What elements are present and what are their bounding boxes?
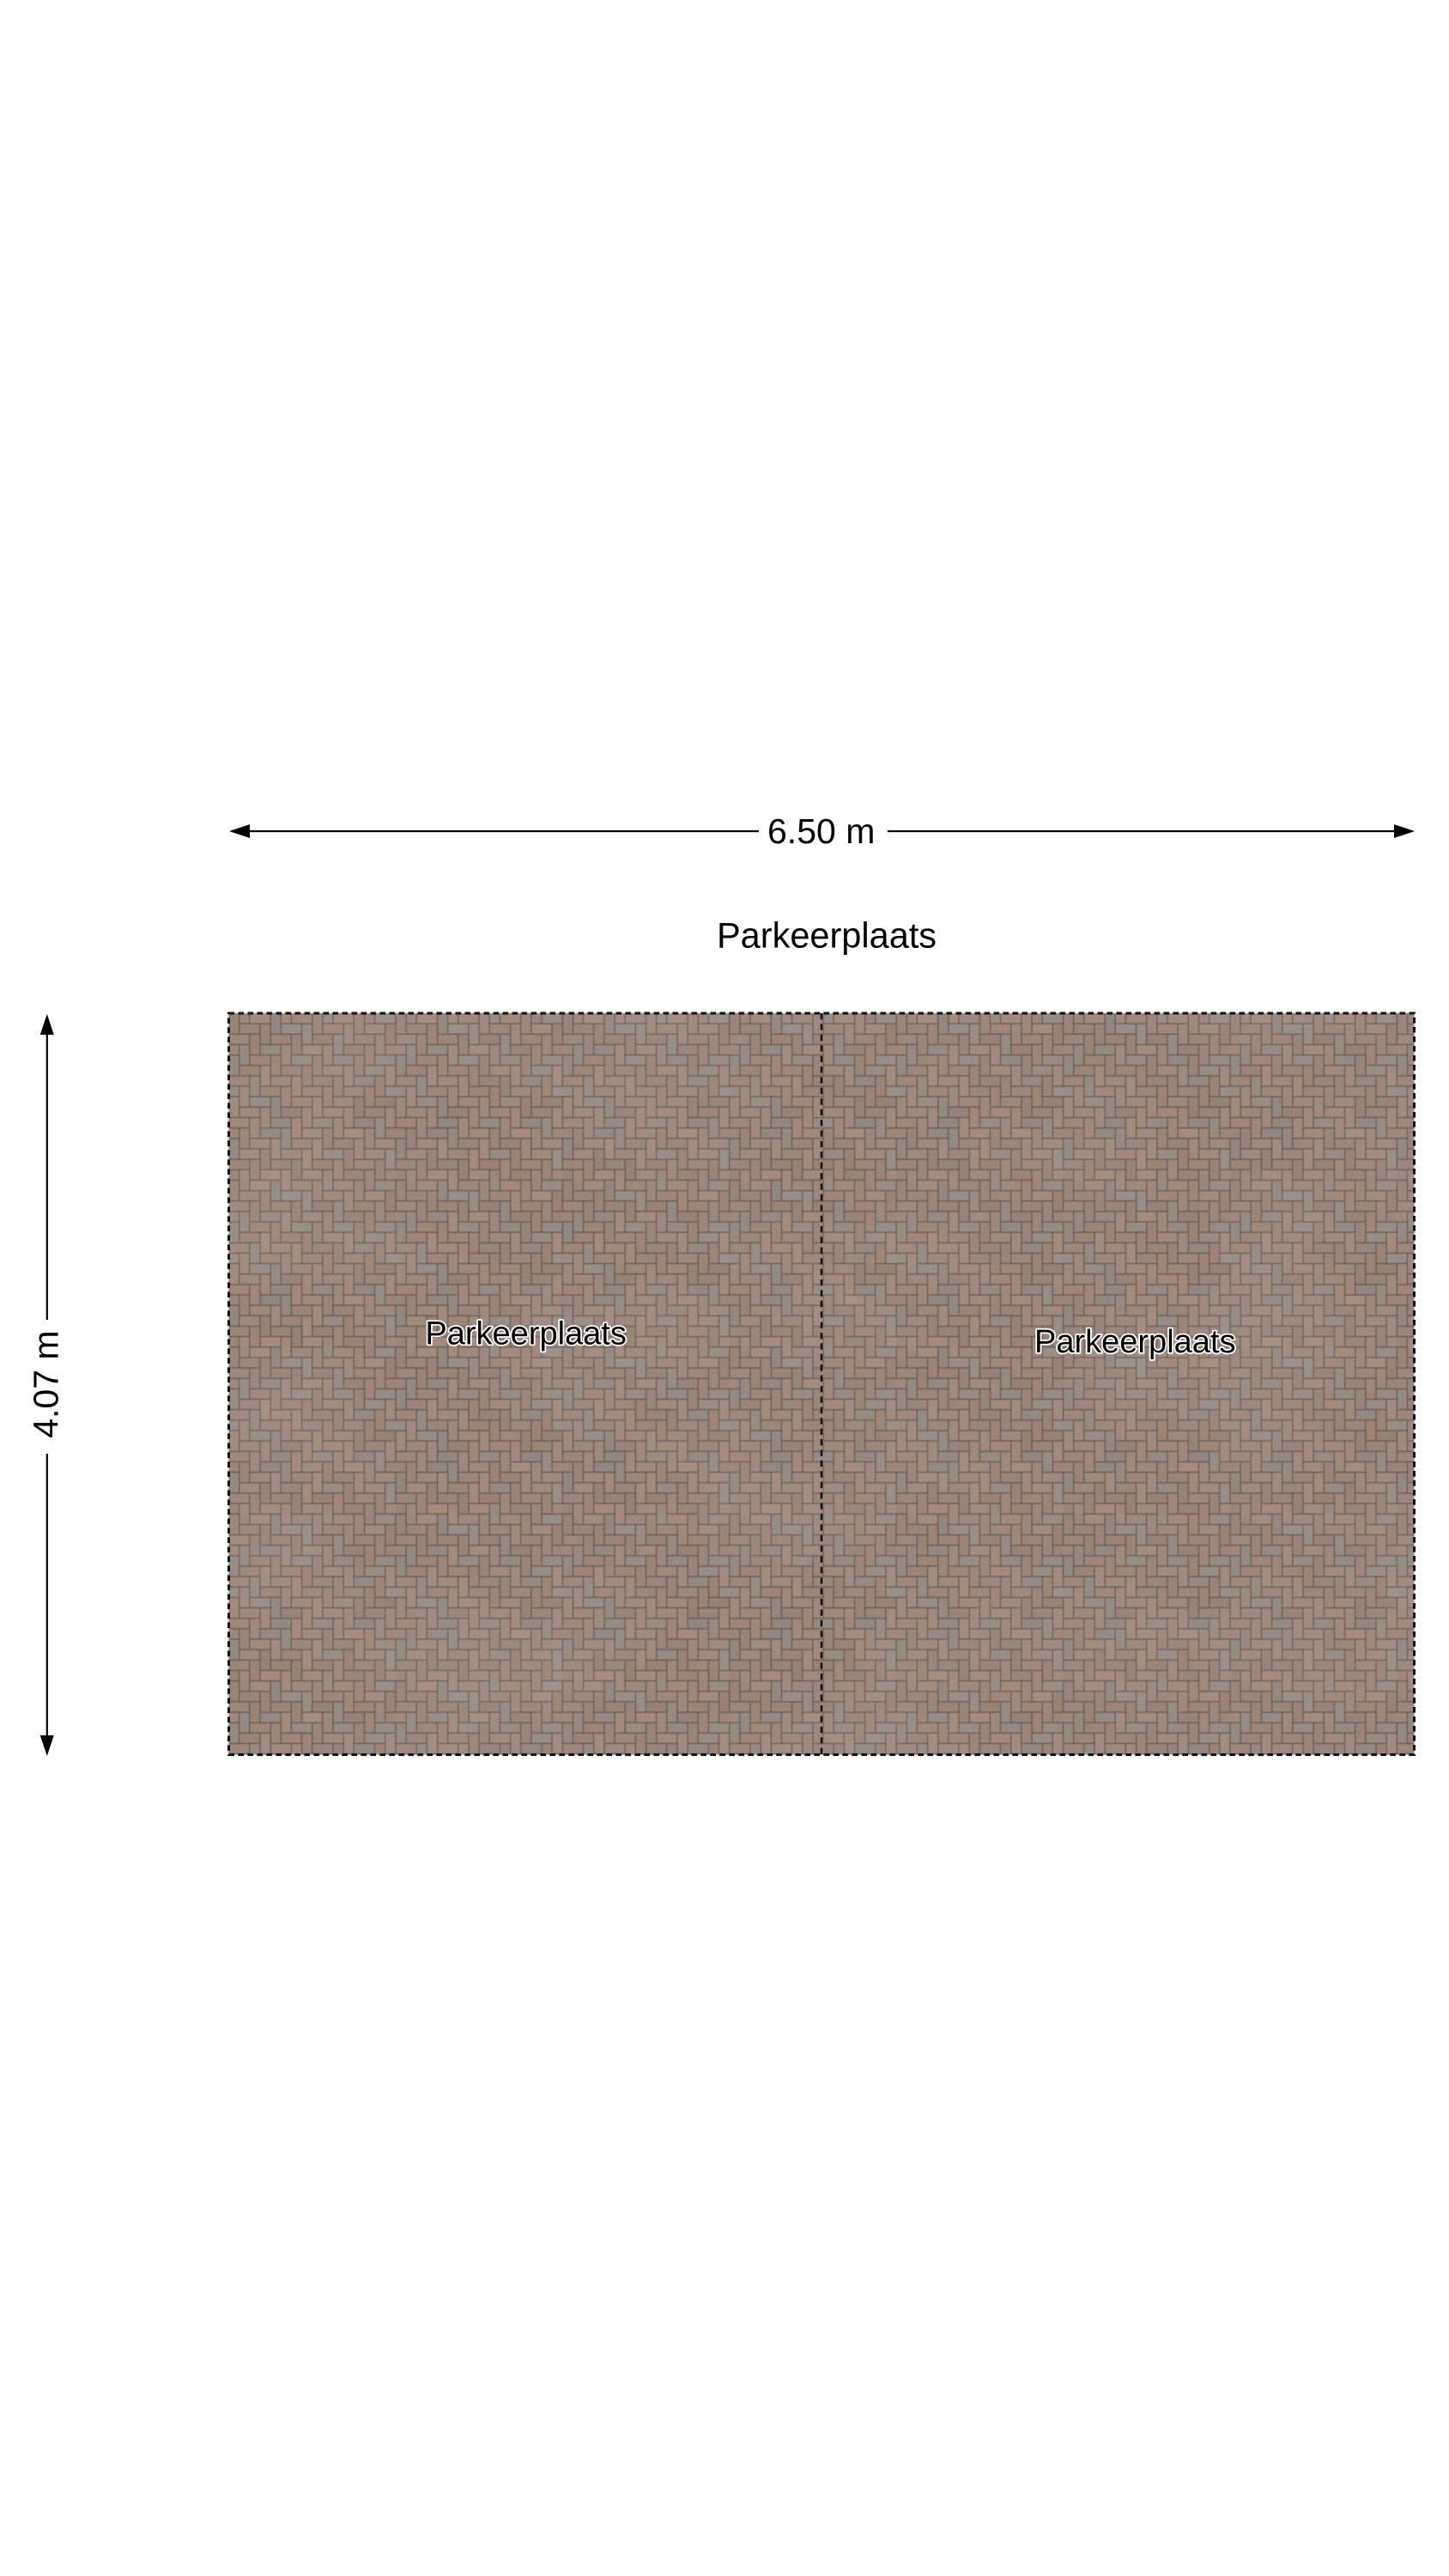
svg-text:Parkeerplaats: Parkeerplaats: [425, 1315, 626, 1352]
svg-text:Parkeerplaats: Parkeerplaats: [1034, 1324, 1235, 1360]
svg-text:4.07 m: 4.07 m: [27, 1330, 66, 1437]
svg-text:Parkeerplaats: Parkeerplaats: [717, 915, 937, 956]
svg-text:6.50 m: 6.50 m: [767, 811, 875, 851]
